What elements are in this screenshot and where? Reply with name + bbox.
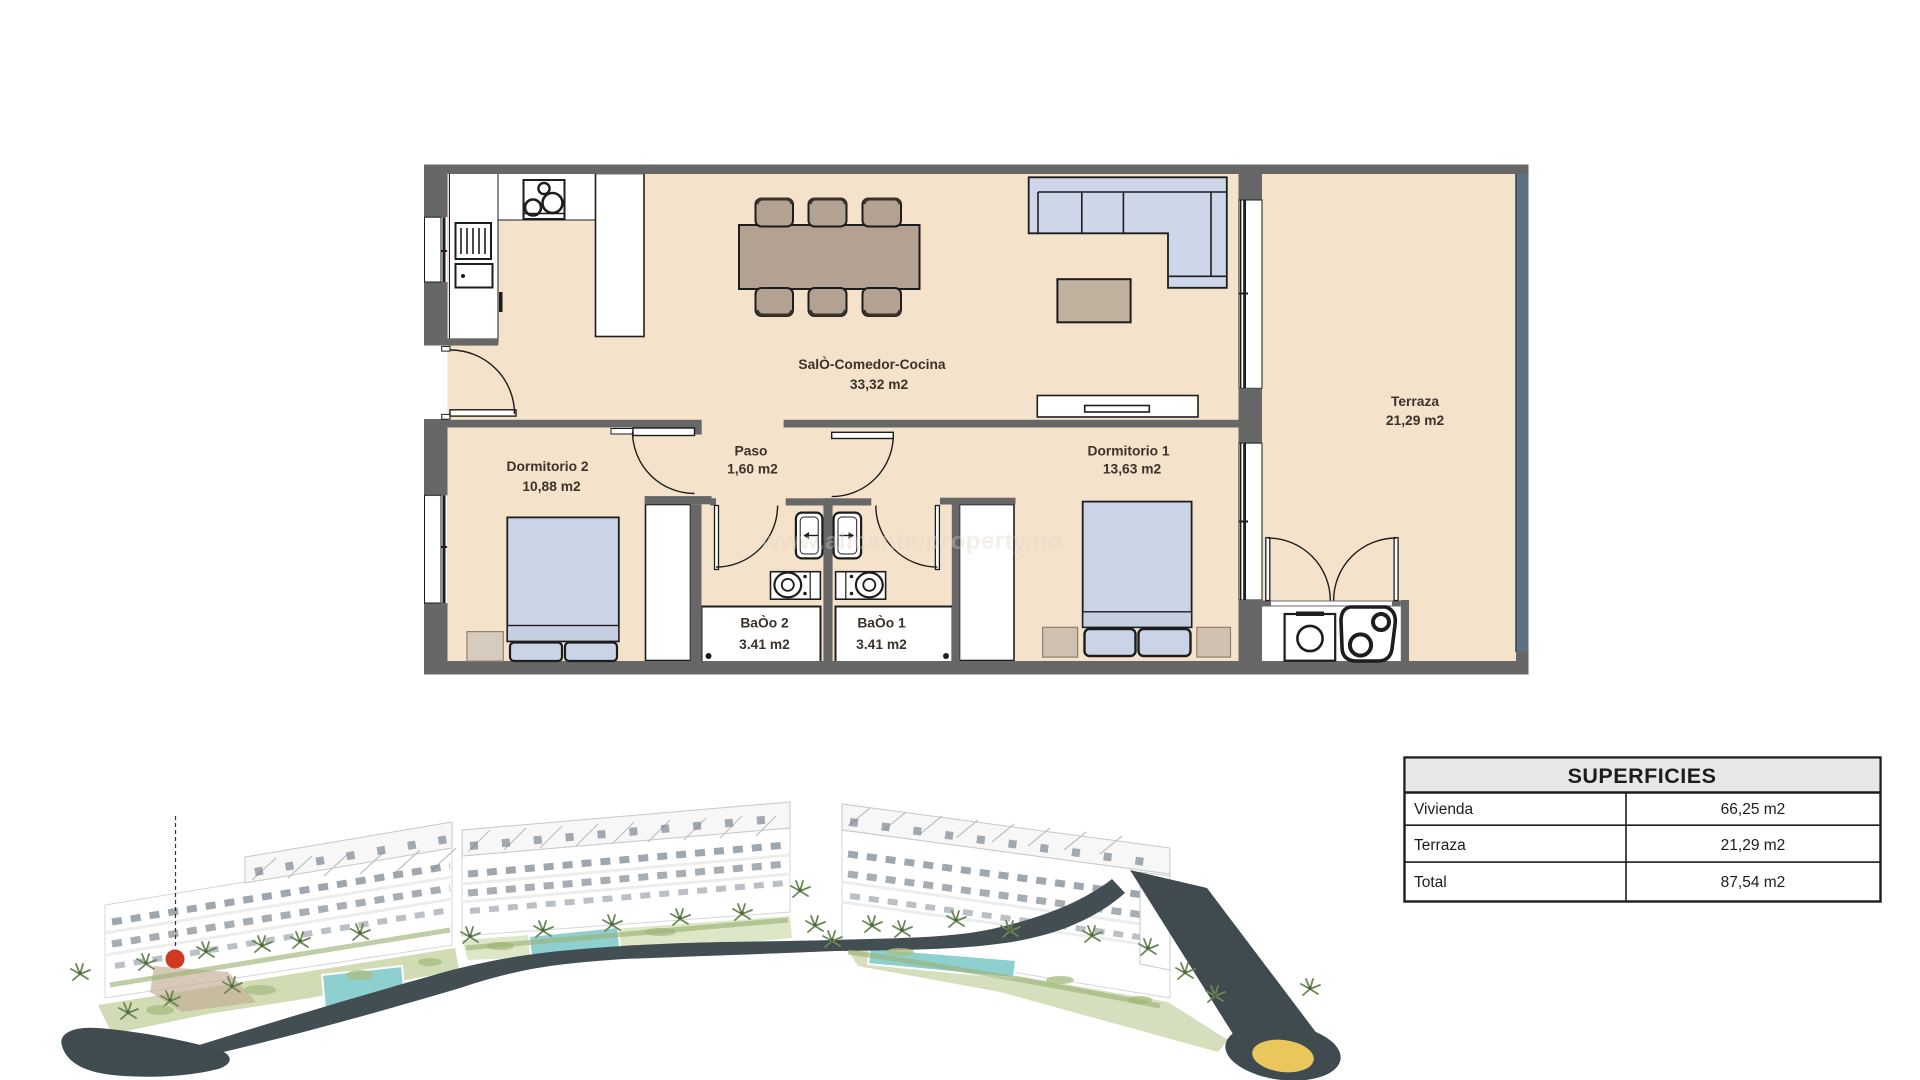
svg-text:BaÒo 1: BaÒo 1 bbox=[857, 614, 906, 631]
svg-text:Total: Total bbox=[1414, 874, 1447, 891]
svg-text:87,54 m2: 87,54 m2 bbox=[1721, 874, 1786, 891]
svg-text:66,25 m2: 66,25 m2 bbox=[1721, 801, 1786, 818]
svg-text:21,29 m2: 21,29 m2 bbox=[1386, 413, 1445, 428]
svg-text:Vivienda: Vivienda bbox=[1414, 801, 1474, 818]
svg-text:www.alicante.property.no: www.alicante.property.no bbox=[760, 528, 1062, 555]
svg-text:1,60 m2: 1,60 m2 bbox=[727, 462, 778, 477]
svg-text:SalÒ-Comedor-Cocina: SalÒ-Comedor-Cocina bbox=[798, 355, 946, 372]
svg-text:Terraza: Terraza bbox=[1414, 837, 1466, 854]
svg-text:21,29 m2: 21,29 m2 bbox=[1721, 837, 1786, 854]
svg-text:3.41 m2: 3.41 m2 bbox=[739, 637, 790, 652]
svg-text:Dormitorio 1: Dormitorio 1 bbox=[1087, 444, 1169, 459]
svg-text:Dormitorio 2: Dormitorio 2 bbox=[506, 459, 588, 474]
svg-text:Terraza: Terraza bbox=[1391, 394, 1439, 409]
svg-text:SUPERFICIES: SUPERFICIES bbox=[1568, 764, 1717, 788]
svg-text:10,88 m2: 10,88 m2 bbox=[522, 479, 581, 494]
svg-text:33,32 m2: 33,32 m2 bbox=[850, 377, 909, 392]
svg-text:Paso: Paso bbox=[735, 444, 768, 459]
svg-text:3.41 m2: 3.41 m2 bbox=[856, 637, 907, 652]
svg-text:BaÒo 2: BaÒo 2 bbox=[740, 614, 789, 631]
svg-text:13,63 m2: 13,63 m2 bbox=[1103, 462, 1162, 477]
